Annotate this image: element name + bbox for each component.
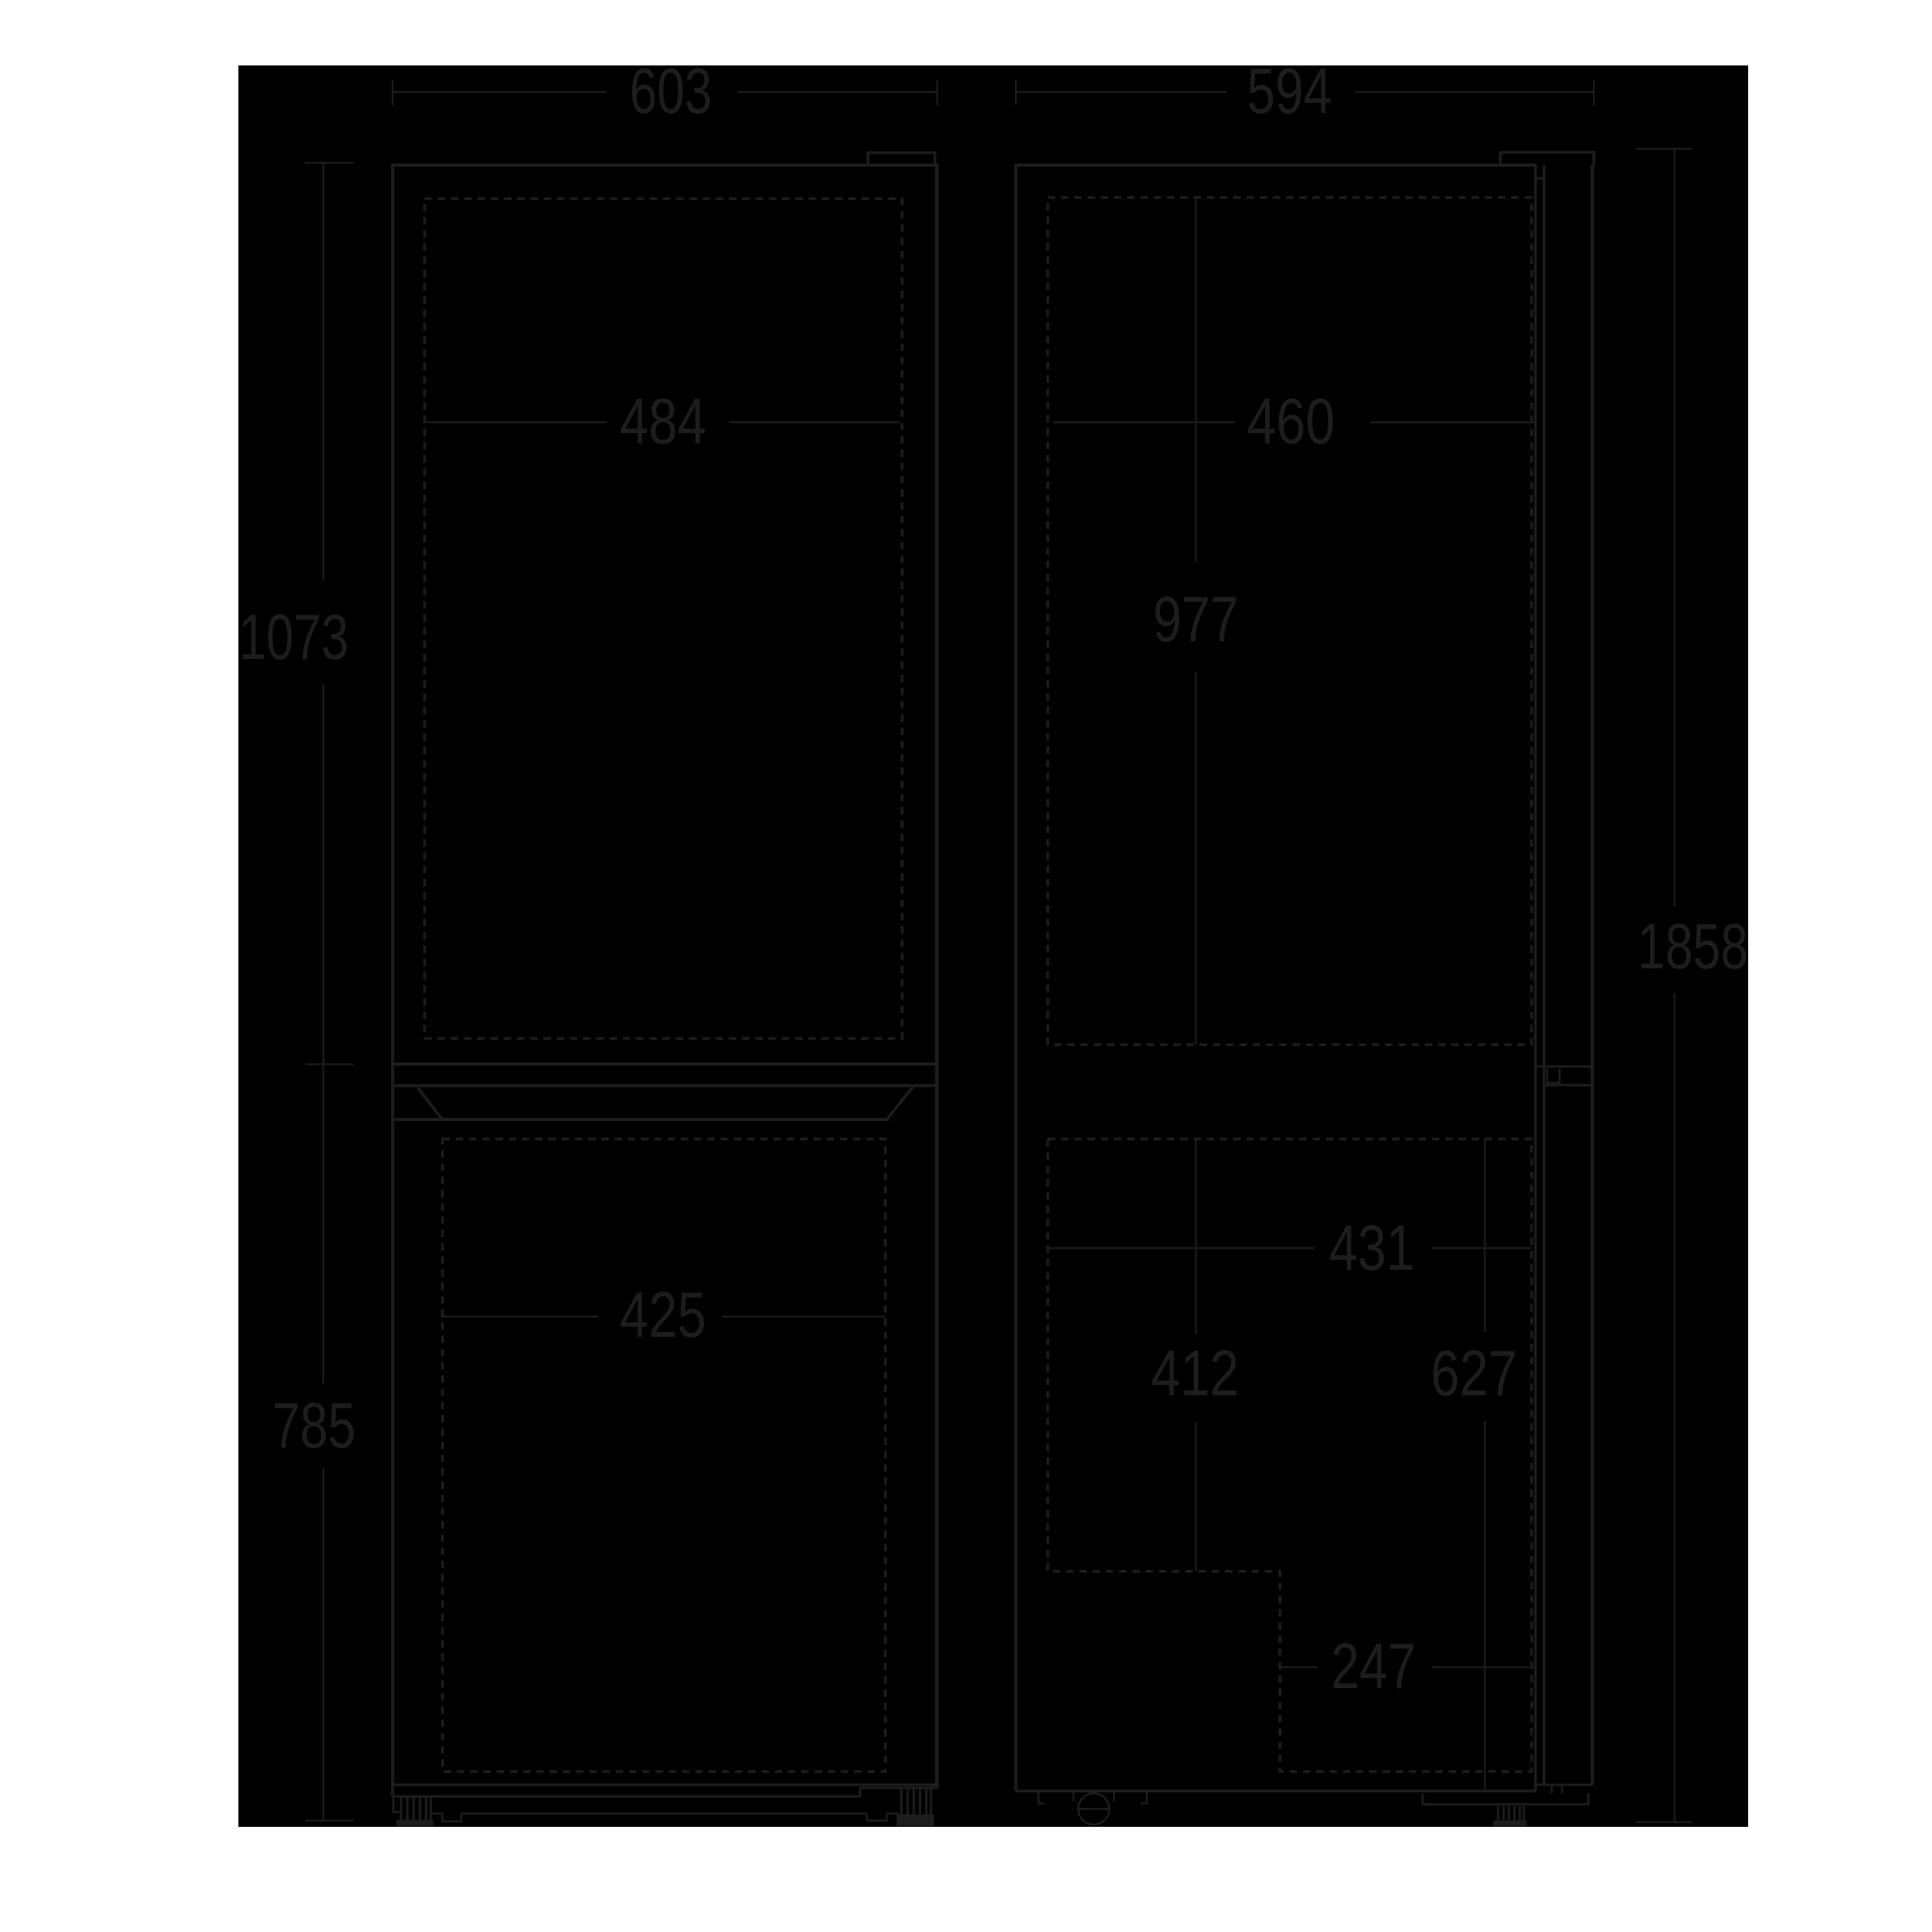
svg-text:785: 785: [273, 1389, 356, 1461]
svg-text:460: 460: [1247, 385, 1335, 457]
svg-text:1858: 1858: [1638, 910, 1748, 982]
svg-text:977: 977: [1153, 583, 1239, 655]
svg-text:425: 425: [620, 1278, 707, 1351]
svg-text:594: 594: [1247, 55, 1332, 127]
svg-text:431: 431: [1329, 1211, 1415, 1284]
svg-text:1073: 1073: [239, 601, 349, 673]
svg-text:247: 247: [1331, 1630, 1416, 1702]
svg-text:627: 627: [1431, 1337, 1518, 1409]
svg-text:603: 603: [629, 55, 712, 127]
svg-text:484: 484: [620, 385, 707, 457]
svg-text:412: 412: [1151, 1337, 1239, 1409]
